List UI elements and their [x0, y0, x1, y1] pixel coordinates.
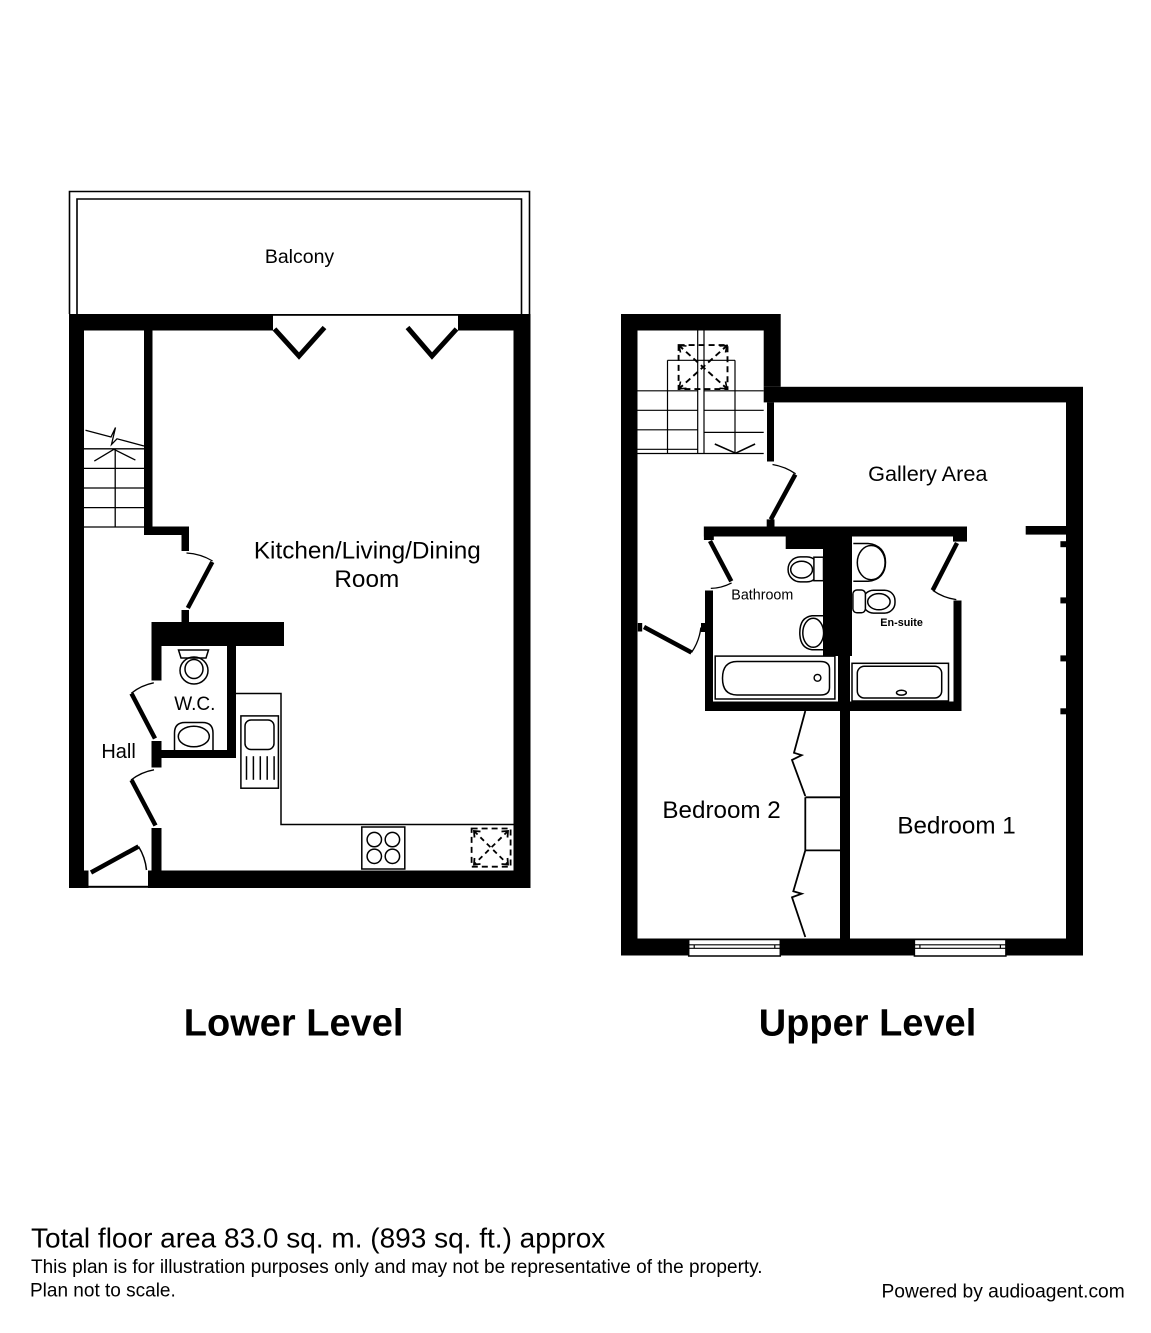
svg-text:Bedroom 1: Bedroom 1 — [897, 813, 1015, 840]
svg-text:Bathroom: Bathroom — [731, 587, 793, 603]
svg-text:En-suite: En-suite — [880, 617, 923, 629]
svg-text:Total floor area 83.0 sq. m. (: Total floor area 83.0 sq. m. (893 sq. ft… — [31, 1222, 605, 1253]
svg-text:Hall: Hall — [101, 741, 135, 763]
svg-text:Gallery Area: Gallery Area — [868, 461, 988, 486]
svg-text:Kitchen/Living/Dining: Kitchen/Living/Dining — [254, 538, 481, 565]
svg-text:Lower Level: Lower Level — [184, 1003, 404, 1045]
svg-text:Bedroom 2: Bedroom 2 — [662, 797, 780, 824]
svg-text:Powered by audioagent.com: Powered by audioagent.com — [882, 1282, 1125, 1303]
svg-text:Plan not to scale.: Plan not to scale. — [30, 1280, 176, 1301]
svg-text:W.C.: W.C. — [174, 694, 215, 715]
svg-text:Balcony: Balcony — [265, 246, 335, 268]
svg-text:This plan is for illustration: This plan is for illustration purposes o… — [31, 1257, 763, 1278]
svg-text:Upper Level: Upper Level — [759, 1003, 977, 1045]
svg-text:Room: Room — [334, 566, 399, 593]
